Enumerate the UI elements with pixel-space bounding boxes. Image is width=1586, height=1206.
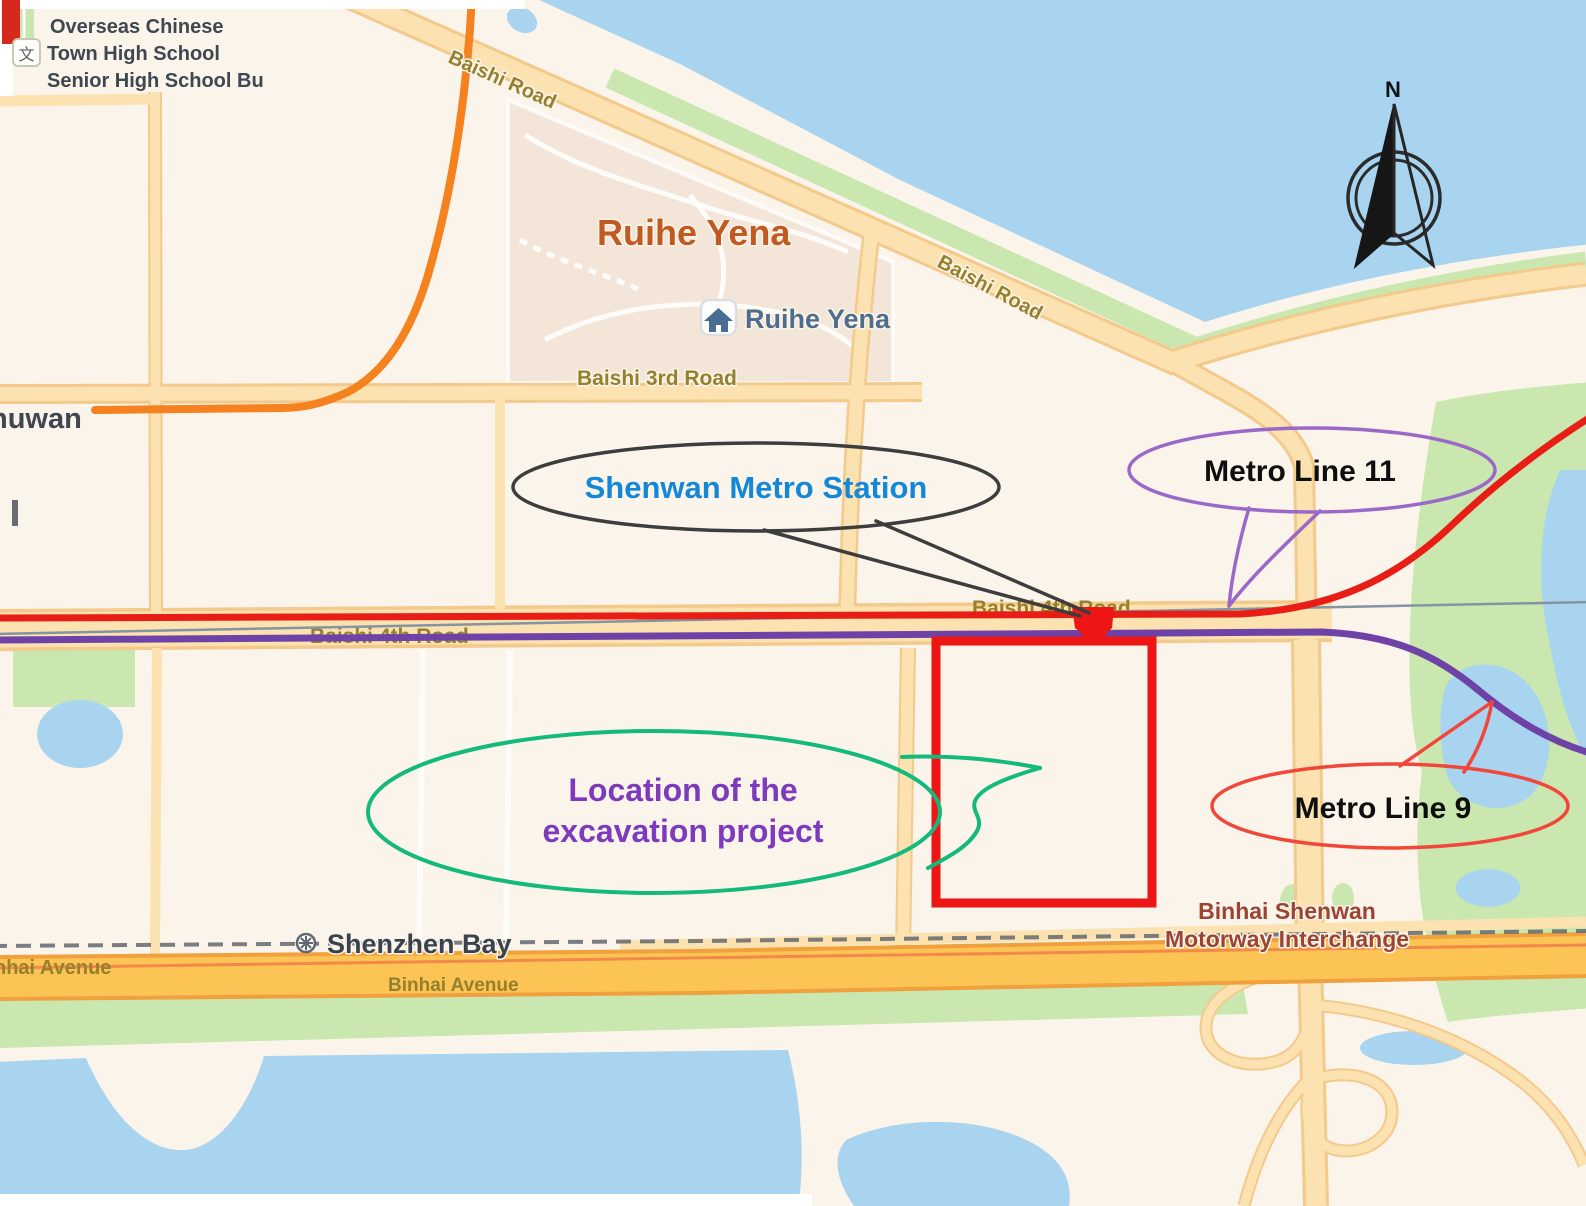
binhai-avenue-label-mid: Binhai Avenue xyxy=(388,975,519,996)
metro9-callout-text: Metro Line 9 xyxy=(1295,792,1472,825)
interchange-label-line2: Motorway Interchange xyxy=(1165,926,1409,952)
residential-poi-label: Ruihe Yena xyxy=(745,304,891,334)
page-margin-bottom xyxy=(0,1194,812,1206)
baishi-3rd-road-label: Baishi 3rd Road xyxy=(577,367,737,390)
school-label-line2: Town High School xyxy=(47,43,220,65)
station-callout-text: Shenwan Metro Station xyxy=(585,470,928,505)
right-small-pond xyxy=(1456,869,1520,907)
excavation-text-line2: excavation project xyxy=(543,813,824,849)
west-vertical-road xyxy=(155,92,156,626)
district-label-partial: nuwan xyxy=(0,403,82,435)
school-label-line3: Senior High School Bu xyxy=(47,70,264,92)
map-figure: Baishi Road Baishi Road Baishi 3rd Road … xyxy=(0,0,1586,1206)
baishi-3rd-road xyxy=(0,392,922,394)
page-margin-top xyxy=(0,0,525,9)
residential-area-label: Ruihe Yena xyxy=(597,212,791,253)
bay-checkpoint-icon xyxy=(297,934,315,952)
map-canvas: Baishi Road Baishi Road Baishi 3rd Road … xyxy=(0,0,1586,1206)
left-pond xyxy=(37,700,123,768)
school-label-line1: Overseas Chinese xyxy=(50,16,223,38)
compass-north-label: N xyxy=(1385,77,1401,102)
left-park xyxy=(13,650,135,707)
binhai-avenue-label-west: Binhai Avenue xyxy=(0,957,111,979)
excavation-text-line1: Location of the xyxy=(568,772,797,808)
corner-red-mark xyxy=(2,0,20,44)
bay-label: Shenzhen Bay xyxy=(327,929,512,959)
school-icon-glyph: 文 xyxy=(18,46,34,64)
interchange-label-line1: Binhai Shenwan xyxy=(1198,898,1376,924)
metro11-callout-text: Metro Line 11 xyxy=(1204,455,1396,488)
edge-tick-mark xyxy=(12,500,18,526)
